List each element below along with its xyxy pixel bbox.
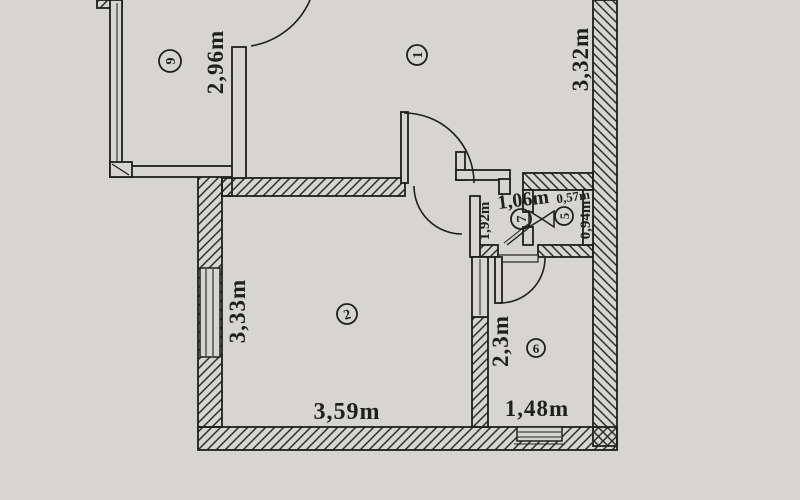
room5-number: 5 xyxy=(557,212,572,219)
room2-vertical-dimension-label: 3,33m xyxy=(225,279,250,343)
room9-left-wall xyxy=(110,0,122,170)
scanned-floor-plan-page: 2,96m 3,32m 3,33m 3,59m 1,48m 2,3m 1,92m… xyxy=(0,0,800,500)
room9-dimension-label: 2,96m xyxy=(203,30,228,94)
room6-left-wall xyxy=(472,317,488,427)
room9-room1-divider-wall xyxy=(232,47,246,178)
room6-number: 6 xyxy=(533,341,540,356)
room6-door-leaf xyxy=(495,257,502,303)
mid-horizontal-wall xyxy=(222,178,405,196)
room2-window xyxy=(200,268,220,357)
hall-vertical-dimension-label: 1,92m xyxy=(477,201,493,240)
right-outer-wall xyxy=(593,0,617,446)
room9-number: 9 xyxy=(164,58,179,65)
room6-vertical-dimension-label: 2,3m xyxy=(488,315,513,367)
floor-plan: 2,96m 3,32m 3,33m 3,59m 1,48m 2,3m 1,92m… xyxy=(0,0,800,500)
room6-horizontal-dimension-label: 1,48m xyxy=(505,396,569,421)
room5-vertical-dimension-label: 0,94m xyxy=(578,200,594,239)
room6-window xyxy=(517,427,562,441)
door-threshold xyxy=(498,255,538,262)
room7-number: 7 xyxy=(515,216,530,223)
room1-number: 1 xyxy=(411,52,426,59)
room1-door-leaf xyxy=(401,112,408,183)
room5-left-wall-lower-stub xyxy=(523,227,533,245)
room2-horizontal-dimension-label: 3,59m xyxy=(314,399,381,425)
room6-top-wall-right xyxy=(538,245,593,257)
room1-dimension-label: 3,32m xyxy=(568,27,593,91)
